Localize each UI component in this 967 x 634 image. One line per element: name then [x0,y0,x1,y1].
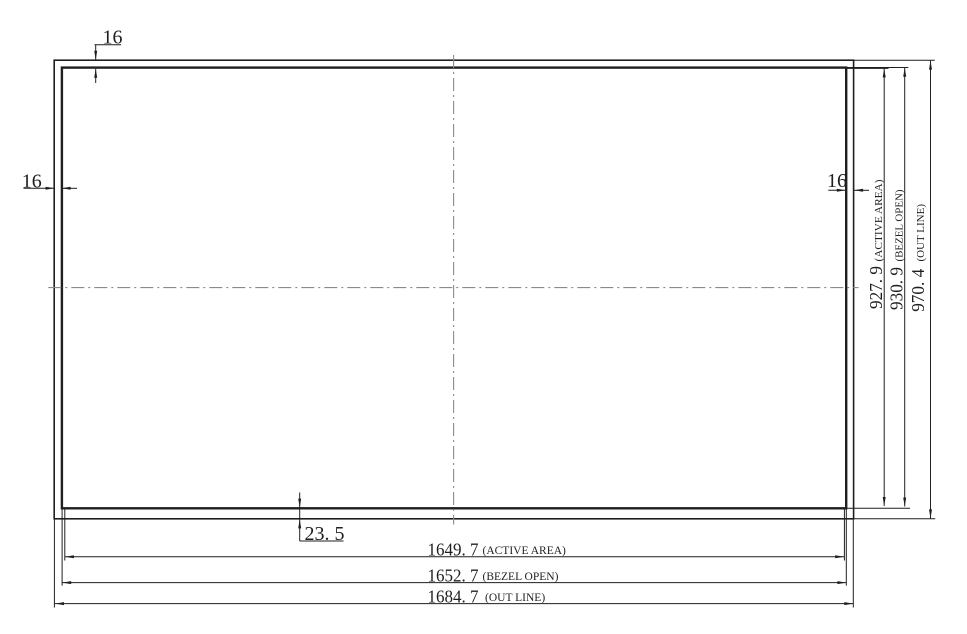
svg-text:(ACTIVE AREA): (ACTIVE AREA) [483,545,567,557]
svg-text:1684. 7: 1684. 7 [428,586,479,606]
svg-text:23. 5: 23. 5 [305,523,345,545]
svg-text:927. 9: 927. 9 [866,266,886,309]
svg-text:(ACTIVE AREA): (ACTIVE AREA) [873,179,885,261]
svg-text:930. 9: 930. 9 [887,267,907,310]
svg-text:(OUT LINE): (OUT LINE) [485,592,545,604]
svg-text:1652. 7: 1652. 7 [428,565,479,585]
svg-text:970. 4: 970. 4 [908,269,928,312]
svg-text:16: 16 [827,170,847,192]
svg-text:16: 16 [22,170,42,192]
svg-text:1649. 7: 1649. 7 [428,540,479,560]
svg-text:(BEZEL OPEN): (BEZEL OPEN) [483,571,559,583]
svg-text:(OUT LINE): (OUT LINE) [915,204,927,262]
svg-text:(BEZEL OPEN): (BEZEL OPEN) [894,189,906,261]
